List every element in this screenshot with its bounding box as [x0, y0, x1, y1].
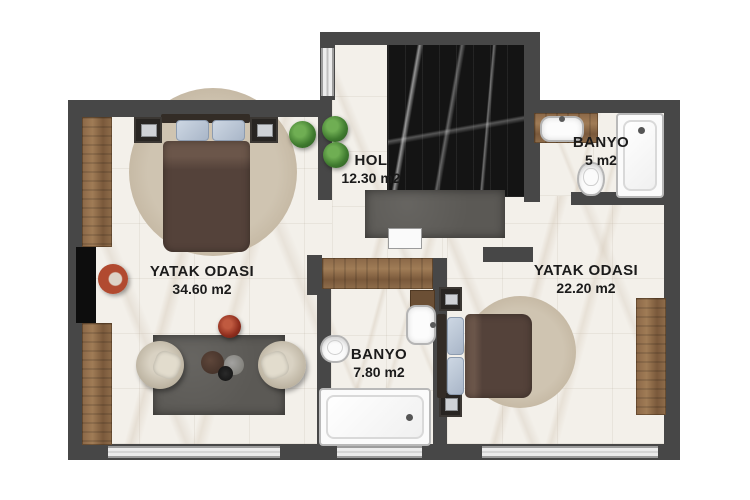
room-label-bedroom-right: YATAK ODASI 22.20 m2 [534, 262, 638, 296]
room-name: BANYO [351, 346, 407, 364]
side-stool [218, 366, 233, 381]
pillow [212, 120, 245, 141]
wardrobe-left-lower [82, 323, 112, 445]
nightstand [439, 287, 462, 311]
room-area: 12.30 m2 [341, 170, 400, 187]
wall-bedroom-right-entry [483, 247, 533, 262]
room-name: BANYO [573, 134, 629, 152]
bathtub-drain [406, 414, 413, 421]
room-area: 34.60 m2 [150, 281, 254, 298]
room-label-bathroom-top: BANYO 5 m2 [573, 134, 629, 168]
window-tower-left [321, 48, 334, 96]
plant-icon [289, 121, 316, 148]
bathtub [319, 388, 431, 446]
room-area: 22.20 m2 [534, 280, 638, 297]
wall-console-cap [307, 255, 322, 295]
nightstand [250, 117, 278, 143]
wardrobe-right [636, 298, 666, 415]
wall-top-right [524, 100, 680, 113]
armchair [136, 341, 184, 389]
pillow [176, 120, 209, 141]
wall-niche-left [76, 247, 96, 323]
red-plant-icon [218, 315, 241, 338]
window-bedroom-right [482, 446, 658, 458]
bed-headboard-right [437, 314, 446, 398]
floor-plan: YATAK ODASI 34.60 m2 YATAK ODASI 22.20 m… [0, 0, 750, 500]
room-label-bathroom-mid: BANYO 7.80 m2 [351, 346, 407, 380]
wall-tower-top [320, 32, 538, 45]
pillow [447, 357, 464, 395]
double-bed-left [163, 141, 250, 252]
room-name: YATAK ODASI [150, 263, 254, 281]
pillow [447, 317, 464, 355]
room-name: YATAK ODASI [534, 262, 638, 280]
room-area: 7.80 m2 [351, 364, 407, 381]
room-name: HOL [341, 152, 400, 170]
sink-icon [406, 305, 436, 345]
wardrobe-left-upper [82, 117, 112, 247]
room-label-hall: HOL 12.30 m2 [341, 152, 400, 186]
room-label-bedroom-left: YATAK ODASI 34.60 m2 [150, 263, 254, 297]
staircase-dark-marble [388, 44, 524, 196]
window-bedroom-left [108, 446, 280, 458]
toilet-icon [320, 335, 350, 363]
plant-icon [322, 116, 348, 142]
window-bathroom-mid [337, 446, 422, 458]
hall-rug [365, 190, 505, 238]
double-bed-right [465, 314, 532, 398]
wall-right [664, 100, 680, 460]
nightstand [134, 117, 162, 143]
armchair [258, 341, 306, 389]
door-mat [388, 228, 422, 249]
room-area: 5 m2 [573, 152, 629, 169]
bathtub-drain [638, 127, 645, 134]
hall-console [322, 258, 433, 289]
round-accent-chair [98, 264, 128, 294]
